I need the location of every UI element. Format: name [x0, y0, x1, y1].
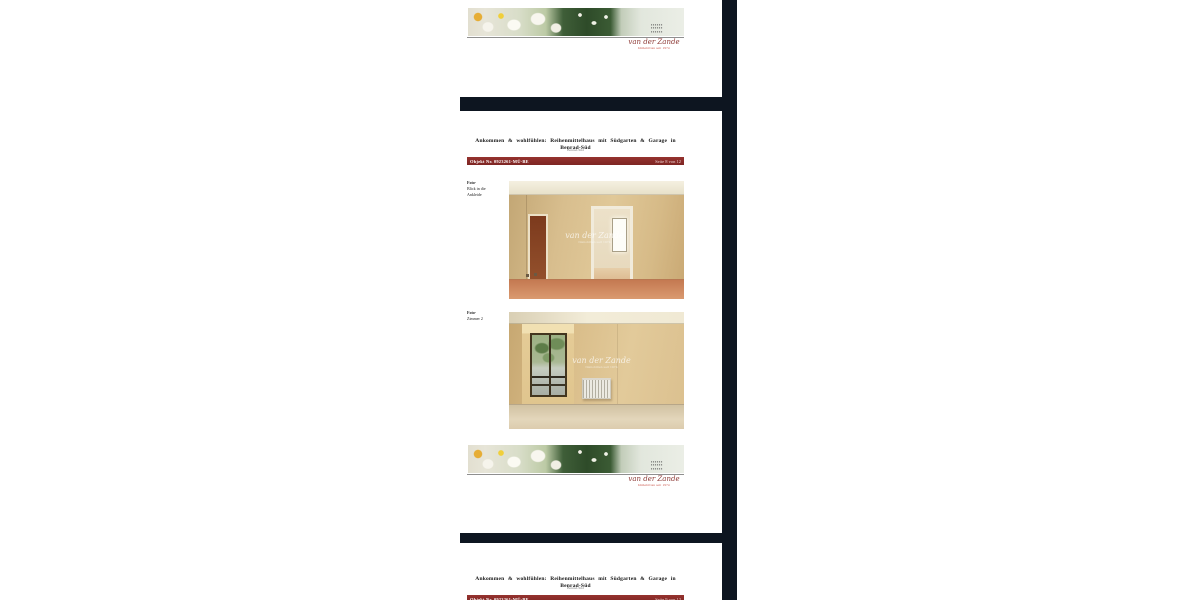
object-number: Objekt Nr. 0923261-MÜ-BE [470, 597, 529, 600]
photo2-radiator [582, 378, 611, 399]
watermark-subline: Immobilien seit 1974 [537, 240, 652, 244]
photo1-doorway-opening [594, 209, 630, 282]
canvas: ▪▪▪▪▪▪ ▪▪▪▪▪▪ ▪▪▪▪▪▪ van der Zande Immob… [0, 0, 1200, 600]
object-number: Objekt Nr. 0923261-MÜ-BE [470, 159, 529, 164]
photo1-watermark: van der Zande Immobilien seit 1974 [537, 231, 652, 244]
page-indicator: Seite 9 von 12 [655, 597, 681, 600]
photo2-balcony-railing [532, 376, 565, 378]
watermark-subline: Immobilien seit 1974 [544, 365, 659, 369]
page-subtitle: Benrad-Süd [467, 148, 684, 152]
caption-line: Ankleide [467, 192, 509, 198]
brand-house-emblem-icon: ▪▪▪▪▪▪ ▪▪▪▪▪▪ ▪▪▪▪▪▪ [646, 23, 668, 37]
photo1-caption: Foto- Blick in die Ankleide [467, 180, 509, 198]
photo-zimmer-2: van der Zande Immobilien seit 1974 [509, 312, 684, 429]
page-separator [460, 533, 737, 543]
brand-logo: van der Zande Immobilien seit 1974 [628, 475, 680, 487]
object-info-bar: Objekt Nr. 0923261-MÜ-BE Seite 8 von 12 [467, 157, 684, 165]
photo1-wooden-door [530, 216, 546, 279]
photo2-ceiling [509, 312, 684, 324]
brand-script-text: van der Zande [628, 38, 680, 46]
page-next: Ankommen & wohlfühlen: Reihenmittelhaus … [460, 543, 722, 600]
object-info-bar: Objekt Nr. 0923261-MÜ-BE Seite 9 von 12 [467, 595, 684, 600]
photo2-caption: Foto- Zimmer 2 [467, 310, 509, 322]
brand-script-text: van der Zande [628, 475, 680, 483]
pdf-viewer: ▪▪▪▪▪▪ ▪▪▪▪▪▪ ▪▪▪▪▪▪ van der Zande Immob… [460, 0, 737, 600]
brand-subline-text: Immobilien seit 1974 [628, 483, 680, 487]
photo2-watermark: van der Zande Immobilien seit 1974 [544, 356, 659, 369]
photo2-balcony-railing [532, 384, 565, 386]
page-current: Ankommen & wohlfühlen: Reihenmittelhaus … [460, 111, 722, 533]
photo-ankleide: van der Zande Immobilien seit 1974 [509, 181, 684, 299]
photo2-carpet-floor [509, 404, 684, 429]
brand-house-emblem-icon: ▪▪▪▪▪▪ ▪▪▪▪▪▪ ▪▪▪▪▪▪ [646, 460, 668, 474]
page-previous: ▪▪▪▪▪▪ ▪▪▪▪▪▪ ▪▪▪▪▪▪ van der Zande Immob… [460, 0, 722, 97]
watermark-script: van der Zande [544, 356, 659, 365]
brand-logo: van der Zande Immobilien seit 1974 [628, 38, 680, 50]
photo1-ceiling [509, 181, 684, 195]
photo1-wall-corner [526, 195, 527, 279]
scrollbar-track[interactable] [722, 0, 737, 600]
page-separator [460, 97, 737, 111]
photo1-socket [534, 273, 537, 276]
page-subtitle: Benrad-Süd [467, 586, 684, 590]
watermark-script: van der Zande [537, 231, 652, 240]
caption-line: Zimmer 2 [467, 316, 509, 322]
brand-subline-text: Immobilien seit 1974 [628, 46, 680, 50]
page-indicator: Seite 8 von 12 [655, 159, 681, 164]
photo1-terracotta-floor [509, 279, 684, 299]
